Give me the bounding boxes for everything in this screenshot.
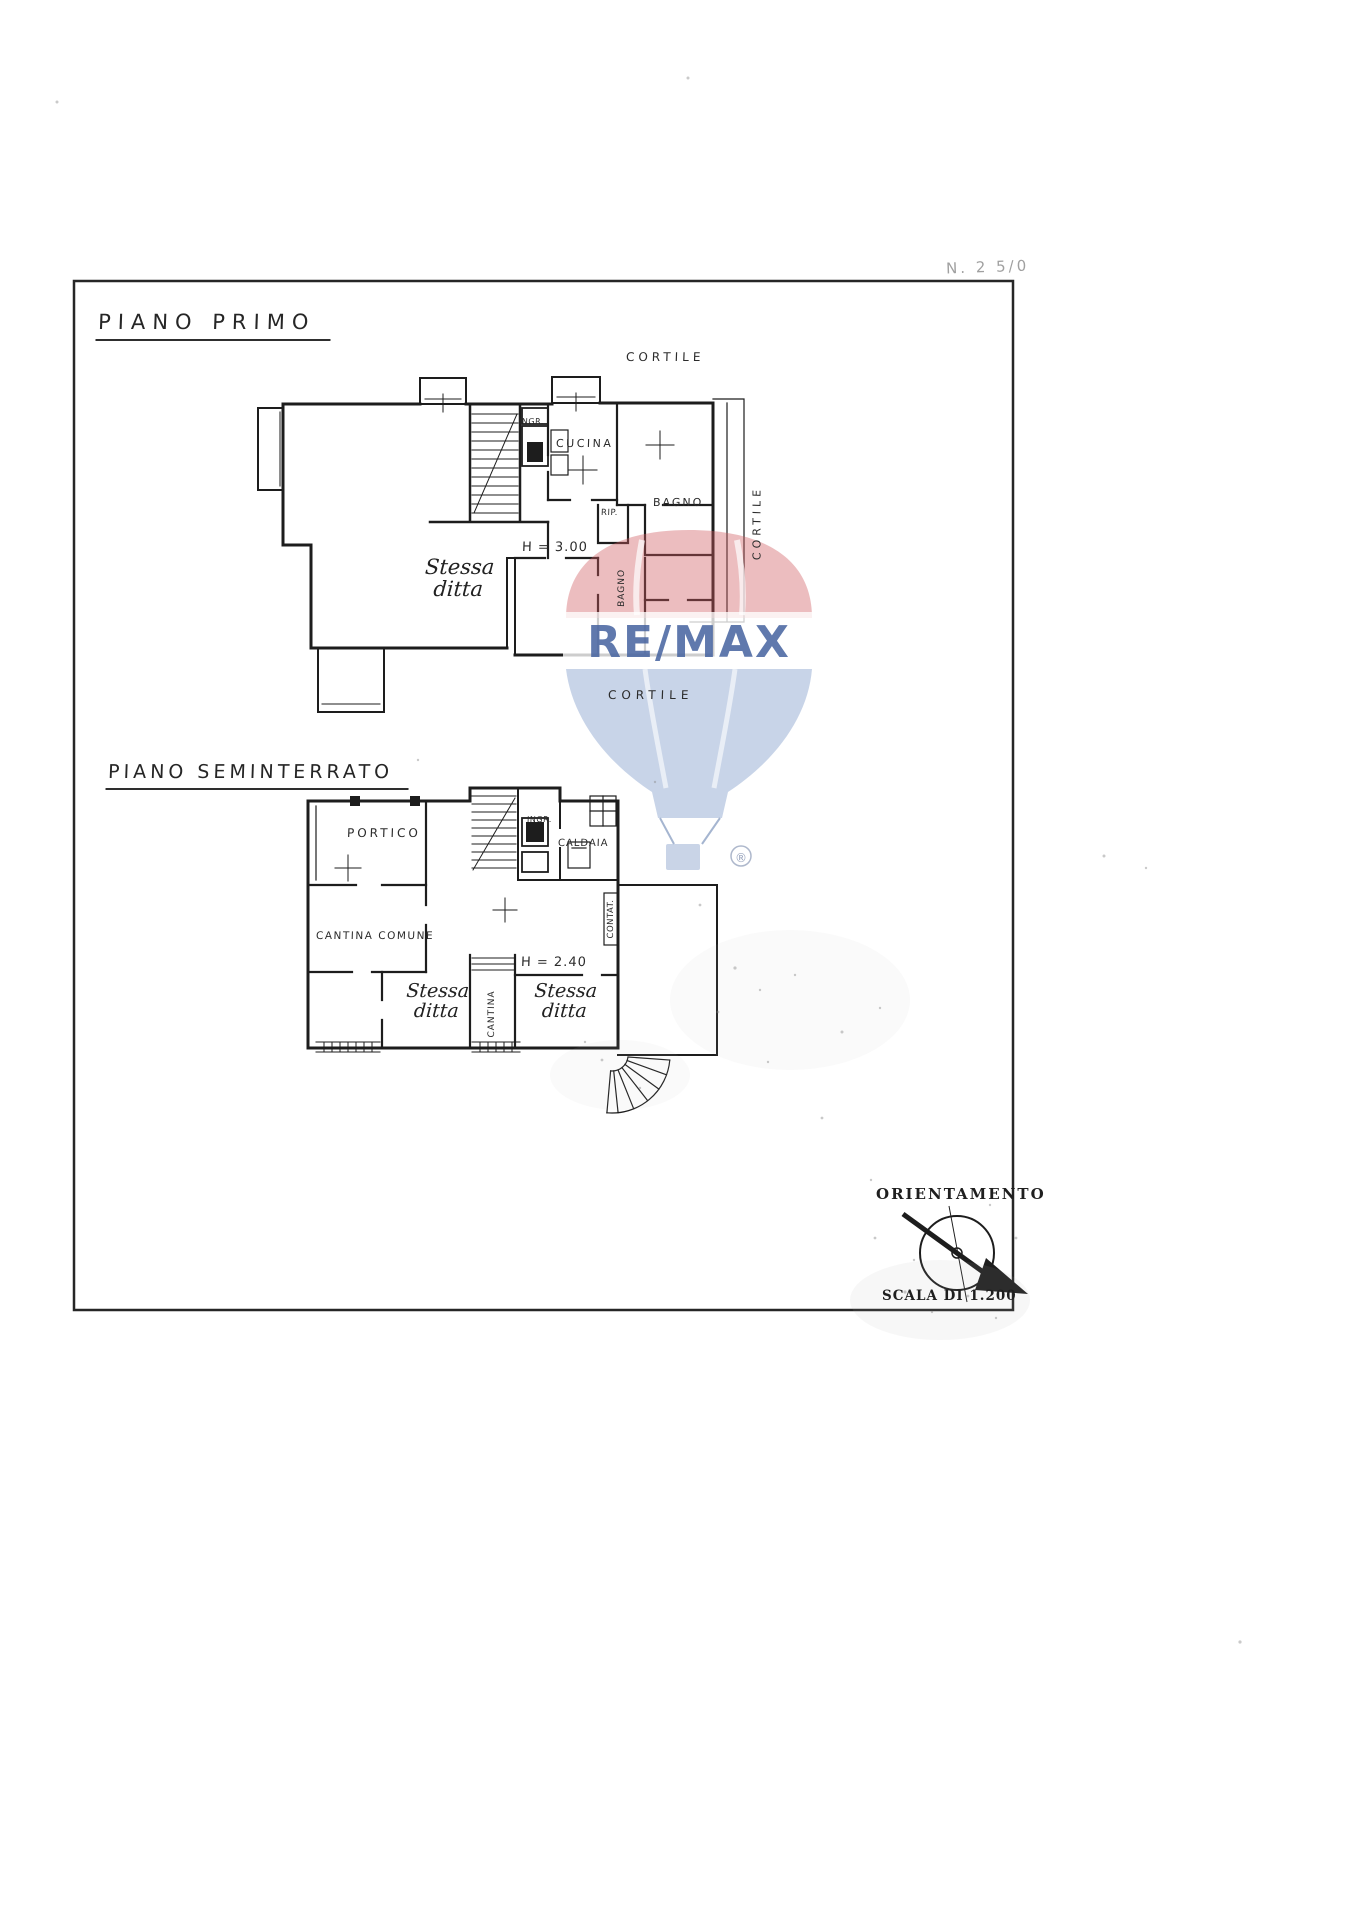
scale-label: SCALA DI 1.200 (882, 1288, 1017, 1304)
stessa-ditta-line1: Stessa (413, 556, 507, 578)
label-ingresso-2: INGR. (527, 815, 552, 824)
remax-wordmark: RE/MAX (587, 617, 791, 668)
corner-note: N. 2 5/0 (946, 257, 1030, 278)
label-cortile-bottom: CORTILE (608, 688, 694, 702)
page-border (74, 281, 1013, 1310)
label-cortile-top: CORTILE (626, 350, 705, 364)
label-cucina: CUCINA (556, 437, 614, 450)
stessa-ditta-line1: Stessa (394, 982, 481, 1002)
label-stessa-ditta-2: Stessa ditta (393, 982, 482, 1022)
label-stessa-ditta-3: Stessa ditta (521, 982, 610, 1022)
stessa-ditta-line1: Stessa (522, 982, 609, 1002)
compass-title: ORIENTAMENTO (876, 1185, 1046, 1203)
label-bagno: BAGNO (653, 496, 704, 509)
first-floor-title: PIANO PRIMO (95, 310, 331, 341)
label-bagno-vertical: BAGNO (617, 569, 627, 607)
label-caldaia: CALDAIA (558, 838, 609, 849)
label-cortile-right: CORTILE (751, 486, 764, 561)
scanned-floorplan-page: RE/MAX ® (0, 0, 1358, 1920)
stessa-ditta-line2: ditta (411, 578, 505, 600)
stessa-ditta-line2: ditta (521, 1002, 608, 1022)
label-contat-vertical: CONTAT. (606, 899, 616, 938)
label-cantina-vertical: CANTINA (487, 990, 497, 1038)
registered-symbol: ® (735, 851, 747, 865)
label-stessa-ditta-1: Stessa ditta (411, 556, 506, 600)
label-cantina-comune: CANTINA COMUNE (316, 930, 435, 942)
label-height-300: H = 3.00 (522, 540, 588, 555)
label-ingresso-1: INGR. (519, 417, 544, 426)
basement-title: PIANO SEMINTERRATO (105, 761, 409, 790)
label-height-240: H = 2.40 (521, 955, 587, 970)
stessa-ditta-line2: ditta (393, 1002, 480, 1022)
floorplan-linework: RE/MAX ® (0, 0, 1358, 1920)
label-portico: PORTICO (347, 826, 421, 840)
label-rip: RIP. (601, 508, 618, 518)
